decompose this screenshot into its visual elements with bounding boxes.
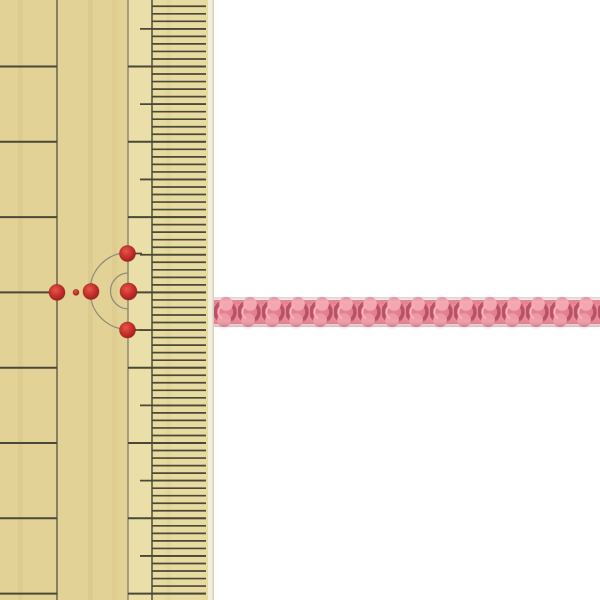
bamboo-ruler <box>0 0 214 600</box>
product-photo <box>0 0 600 600</box>
red-dot <box>83 284 99 300</box>
red-dot <box>120 322 136 338</box>
red-dot <box>73 289 79 295</box>
red-dot <box>120 283 137 300</box>
red-dot <box>120 246 136 262</box>
pink-braided-cord <box>214 297 600 327</box>
red-dot <box>49 284 65 300</box>
cord-braid-texture <box>214 297 600 327</box>
ruler-markings <box>0 0 214 600</box>
